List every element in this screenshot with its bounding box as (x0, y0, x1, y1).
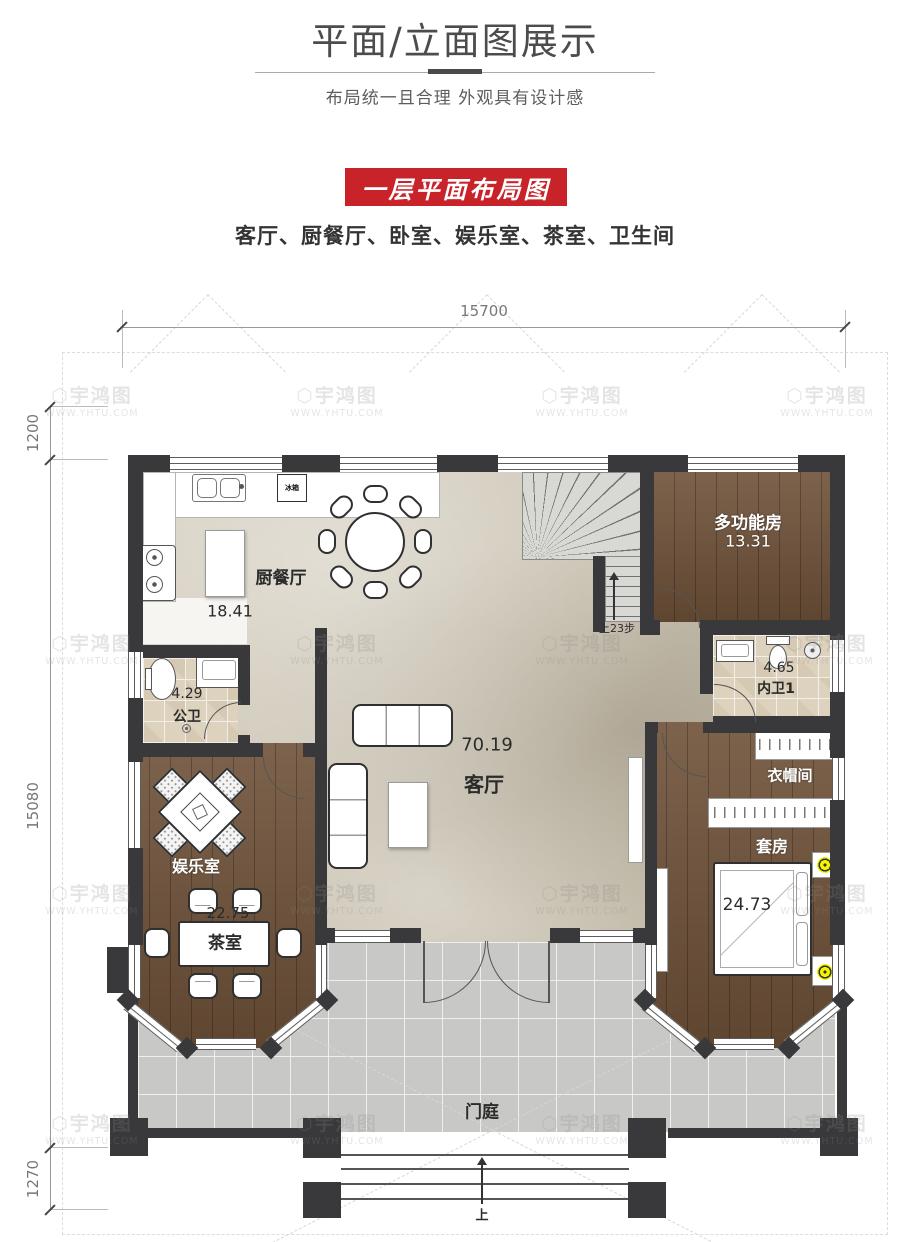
tea-chair (232, 973, 262, 999)
section-banner-label: 一层平面布局图 (362, 170, 551, 205)
wall-segment (128, 848, 143, 945)
page-title: 平面/立面图展示 (311, 11, 598, 65)
burner-icon (146, 549, 163, 566)
inner-bath-area: 4.65 (763, 660, 794, 676)
wall-segment (830, 800, 845, 945)
kitchen-island (205, 530, 245, 597)
step-line (341, 1168, 629, 1170)
porch-column (628, 1182, 666, 1218)
wall-segment (700, 632, 713, 694)
tea-room-area: 22.75 (207, 904, 250, 922)
sink-basin (202, 660, 236, 680)
bed (713, 862, 812, 976)
wall-segment (390, 928, 421, 943)
fridge: 冰箱 (277, 474, 307, 502)
stair-flight (605, 556, 642, 622)
dim-top-value: 15700 (460, 302, 508, 320)
wall-segment (315, 628, 327, 945)
window (128, 762, 141, 848)
wall-segment (238, 645, 250, 705)
wall-segment (640, 472, 654, 632)
inner-bath-label: 内卫1 (757, 678, 795, 698)
multi-room-label: 多功能房 (714, 509, 782, 534)
sink-basin (197, 478, 217, 498)
pillow (796, 922, 808, 966)
dining-chair (414, 529, 432, 554)
entertainment-label: 娱乐室 (172, 853, 220, 877)
shower-head-icon (804, 642, 821, 659)
window (340, 457, 437, 470)
faucet-icon (239, 484, 244, 489)
porch-wall (145, 1128, 308, 1138)
dim-ext-line (50, 406, 108, 407)
suite-area: 24.73 (723, 895, 772, 915)
porch-column (303, 1118, 341, 1158)
wall-segment (640, 620, 660, 635)
lamp-icon (817, 964, 833, 980)
kitchen-dining-label: 厨餐厅 (256, 564, 307, 589)
dim-ext-line (122, 310, 123, 368)
wall-segment (550, 928, 580, 943)
dining-chair (363, 581, 388, 599)
entry-up-label: 上 (475, 1205, 488, 1224)
guest-bath-area: 4.29 (171, 686, 202, 702)
sink-basin (220, 478, 240, 498)
sink-basin (721, 644, 749, 657)
stair-arrow-head (609, 572, 619, 580)
wardrobe-rack (755, 730, 838, 760)
coffee-table (388, 782, 428, 848)
stair-fan (522, 472, 642, 560)
tea-chair (188, 973, 218, 999)
wardrobe-rack (708, 798, 838, 828)
entry-arrow-head (477, 1157, 487, 1165)
sofa-2seat (328, 763, 368, 869)
wall-segment (303, 743, 327, 757)
section-banner: 一层平面布局图 (345, 168, 567, 206)
dim-line-top (122, 327, 846, 328)
living-label: 客厅 (464, 769, 504, 798)
tea-chair (276, 928, 302, 958)
window (832, 640, 845, 692)
porch-column (628, 1118, 666, 1158)
burner-icon (146, 576, 163, 593)
wall-segment (143, 645, 250, 658)
wall-segment (645, 733, 657, 945)
floor-plan-page: 平面/立面图展示 布局统一且合理 外观具有设计感 一层平面布局图 客厅、厨餐厅、… (0, 0, 910, 1242)
bay-window (196, 1038, 256, 1050)
wall-segment (282, 455, 340, 472)
wall-segment (128, 698, 143, 762)
window (170, 457, 282, 470)
mattress (720, 870, 794, 968)
dim-left-lower-value: 1270 (24, 1160, 42, 1198)
sofa-3seat (352, 704, 453, 747)
guest-bath-label: 公卫 (173, 706, 201, 726)
dim-ext-line (50, 459, 108, 460)
wall-segment (107, 947, 128, 993)
tea-room-label: 茶室 (208, 929, 242, 954)
suite-label: 套房 (756, 833, 788, 857)
cloakroom-label: 衣帽间 (767, 765, 812, 786)
window (498, 457, 608, 470)
porch-wall (837, 1000, 847, 1130)
wall-segment (128, 455, 143, 652)
step-line (341, 1198, 629, 1200)
stair-arrow (613, 578, 615, 620)
dim-line-left (50, 407, 51, 1210)
dining-chair (363, 485, 388, 503)
bath-sink (196, 654, 242, 688)
porch-column (820, 1118, 858, 1156)
toilet-tank (145, 668, 152, 690)
entry-arrow (481, 1164, 483, 1204)
wall-segment (645, 722, 658, 733)
dim-left-upper-value: 1200 (24, 414, 42, 452)
pillow (796, 872, 808, 916)
wall-segment (830, 455, 845, 640)
dining-chair (318, 529, 336, 554)
tv-cabinet (628, 757, 643, 863)
living-area: 70.19 (461, 735, 513, 756)
page-subtitle: 布局统一且合理 外观具有设计感 (326, 84, 584, 109)
porch-column (303, 1182, 341, 1218)
kitchen-dining-area: 18.41 (207, 602, 253, 621)
step-line (341, 1154, 629, 1156)
porch-wall (668, 1128, 820, 1138)
multi-room-area: 13.31 (725, 532, 771, 551)
window (128, 652, 141, 698)
dim-ext-line (845, 310, 846, 368)
room-list: 客厅、厨餐厅、卧室、娱乐室、茶室、卫生间 (235, 220, 675, 250)
door-leaf (548, 941, 550, 1003)
porch-label: 门庭 (465, 1098, 499, 1123)
window (580, 930, 633, 943)
kitchen-sink (192, 474, 246, 502)
porch-column (110, 1118, 148, 1156)
door-leaf (423, 941, 425, 1003)
wall-segment (700, 620, 830, 635)
dim-left-main-value: 15080 (24, 782, 42, 830)
stairs-annotation: 上23步 (599, 620, 635, 636)
window (832, 758, 845, 800)
wall-segment (703, 722, 845, 733)
fridge-label: 冰箱 (285, 483, 299, 493)
window (335, 930, 390, 943)
toilet-tank (766, 636, 790, 645)
bath-sink (716, 640, 754, 662)
wall-segment (608, 455, 688, 472)
tea-chair (144, 928, 170, 958)
bay-window (714, 1038, 774, 1050)
title-divider-accent (428, 69, 482, 74)
dining-table (345, 512, 405, 572)
dim-ext-line (50, 1209, 108, 1210)
step-line (341, 1183, 629, 1185)
dim-ext-line (50, 1147, 108, 1148)
wall-segment (437, 455, 498, 472)
window (688, 457, 798, 470)
